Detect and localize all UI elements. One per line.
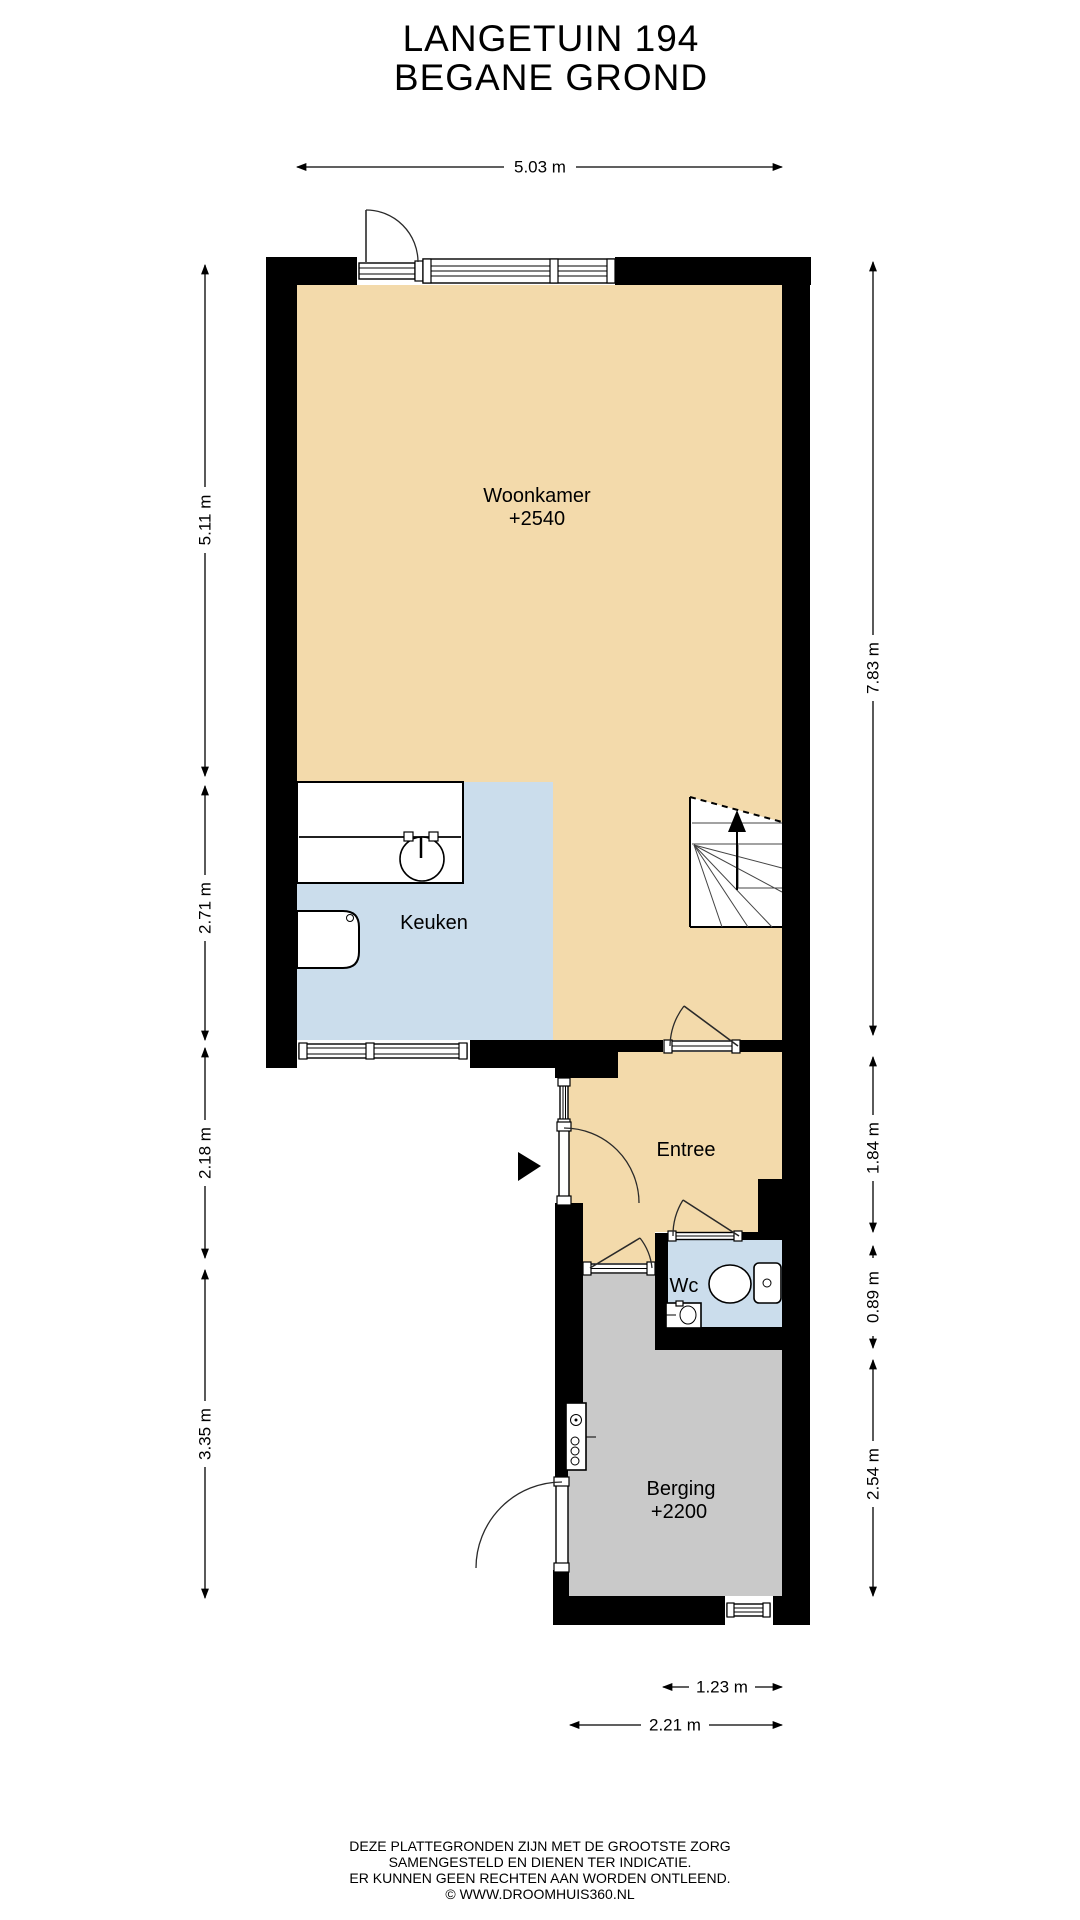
berging-ceiling-label: +2200	[651, 1501, 707, 1523]
kitchen-window	[299, 1043, 467, 1059]
wall-east-notch	[758, 1179, 782, 1240]
dimension-right-main: 7.83 m	[864, 642, 883, 694]
dimension-left-storage: 3.35 m	[196, 1408, 215, 1460]
disclaimer-line2: SAMENGESTELD EN DIENEN TER INDICATIE.	[389, 1854, 692, 1870]
living-room-window	[423, 259, 615, 283]
garden-door	[357, 210, 423, 285]
dimension-right-wc: 0.89 m	[864, 1271, 883, 1323]
wall-hall-south-left	[618, 1040, 663, 1052]
page-title-line1: LANGETUIN 194	[403, 18, 700, 59]
wall-wc-north-right	[742, 1232, 758, 1240]
woonkamer-ceiling-label: +2540	[509, 508, 565, 530]
woonkamer-label: Woonkamer	[483, 485, 591, 507]
wall-wc-south	[655, 1327, 782, 1350]
dimension-bottom-inner: 1.23 m	[696, 1678, 748, 1697]
dimension-left-living: 5.11 m	[196, 495, 215, 546]
wall-berging-west-lower	[553, 1570, 569, 1625]
wc-sink-icon	[666, 1301, 701, 1328]
disclaimer-line1: DEZE PLATTEGRONDEN ZIJN MET DE GROOTSTE …	[349, 1838, 730, 1854]
dimension-top-width: 5.03 m	[514, 158, 566, 177]
garden-door-swing-arc	[366, 210, 418, 262]
floor-fills	[297, 285, 782, 1596]
entree-label: Entree	[657, 1139, 716, 1161]
keuken-label: Keuken	[400, 912, 468, 934]
wall-berging-west-upper	[555, 1203, 583, 1403]
kitchen-tap-right	[429, 832, 438, 841]
wall-southeast-corner	[773, 1596, 810, 1625]
wall-east	[782, 285, 810, 1596]
kitchen-tap-left	[404, 832, 413, 841]
kitchen-cabinet	[297, 911, 359, 968]
berging-exterior-door	[476, 1477, 569, 1572]
disclaimer-line4: © WWW.DROOMHUIS360.NL	[445, 1886, 634, 1902]
wall-west	[266, 285, 297, 1068]
floor-plan-canvas: LANGETUIN 194 BEGANE GROND	[0, 0, 1080, 1920]
dimension-left-kitchen: 2.71 m	[196, 882, 215, 934]
wc-label: Wc	[670, 1275, 699, 1297]
berging-window	[725, 1596, 773, 1625]
dimension-right-storage: 2.54 m	[864, 1448, 883, 1500]
page-title-line2: BEGANE GROND	[394, 57, 708, 98]
disclaimer-line3: ER KUNNEN GEEN RECHTEN AAN WORDEN ONTLEE…	[349, 1870, 730, 1886]
wall-berging-south	[569, 1596, 725, 1625]
floor-plan-page: LANGETUIN 194 BEGANE GROND	[0, 0, 1080, 1920]
dimension-left-entree: 2.18 m	[196, 1127, 215, 1179]
wall-top-left	[266, 257, 357, 285]
dimension-right-entree: 1.84 m	[864, 1122, 883, 1174]
entrance-arrow-icon	[518, 1152, 541, 1181]
wall-kitchen-south-step	[555, 1068, 618, 1078]
wall-hall-south-right	[740, 1040, 782, 1052]
entree-sidelight-window	[558, 1078, 570, 1127]
berging-exterior-door-swing-arc	[476, 1482, 562, 1568]
wall-kitchen-south	[470, 1040, 618, 1068]
disclaimer: DEZE PLATTEGRONDEN ZIJN MET DE GROOTSTE …	[349, 1838, 730, 1902]
dimension-bottom-outer: 2.21 m	[649, 1716, 701, 1735]
wall-top-right	[615, 257, 811, 285]
berging-label: Berging	[647, 1478, 716, 1500]
